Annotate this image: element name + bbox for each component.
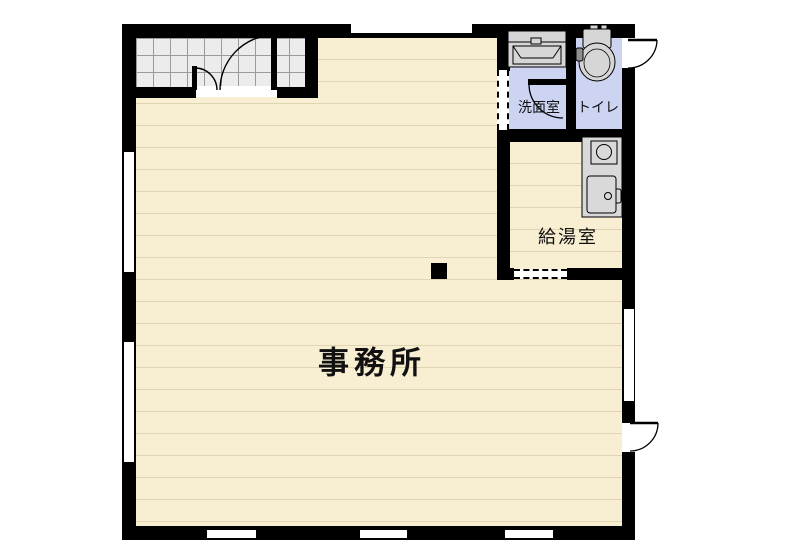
top-wall-window	[351, 24, 472, 33]
office-label: 事務所	[318, 338, 426, 383]
floor-plan: 事務所 洗面室 トイレ 給湯室	[0, 0, 785, 556]
kitchenette-bottom-wall-right	[567, 268, 635, 280]
washroom-toilet-divider-wall	[566, 38, 576, 130]
bottom-wall-window-1	[207, 530, 256, 538]
kitchenette-bottom-wall-left	[497, 268, 514, 280]
office-side-door-gap	[622, 423, 635, 452]
kitchenette-floor	[510, 142, 622, 268]
washroom-left-wall-lower	[497, 129, 510, 280]
wall-right	[622, 24, 635, 540]
sanitary-bottom-wall	[497, 129, 635, 142]
bottom-wall-window-3	[505, 530, 553, 538]
left-wall-window-1	[123, 151, 135, 273]
washroom-label: 洗面室	[518, 97, 560, 117]
pillar	[431, 263, 447, 279]
washroom-left-wall-upper	[497, 38, 510, 71]
right-wall-window	[623, 308, 635, 402]
washroom-toilet-floor	[497, 38, 622, 142]
kitchenette-open-passage	[514, 269, 567, 279]
entry-tile-floor	[136, 38, 305, 88]
washroom-open-passage	[497, 70, 509, 130]
entry-step	[196, 86, 277, 97]
entry-bottom-wall-left	[136, 87, 196, 98]
bottom-wall-window-2	[360, 530, 407, 538]
left-wall-window-2	[123, 341, 135, 463]
toilet-door-gap	[622, 38, 635, 68]
toilet-label: トイレ	[577, 97, 619, 117]
kitchenette-label: 給湯室	[538, 223, 598, 249]
entry-bottom-wall-right	[277, 87, 318, 98]
